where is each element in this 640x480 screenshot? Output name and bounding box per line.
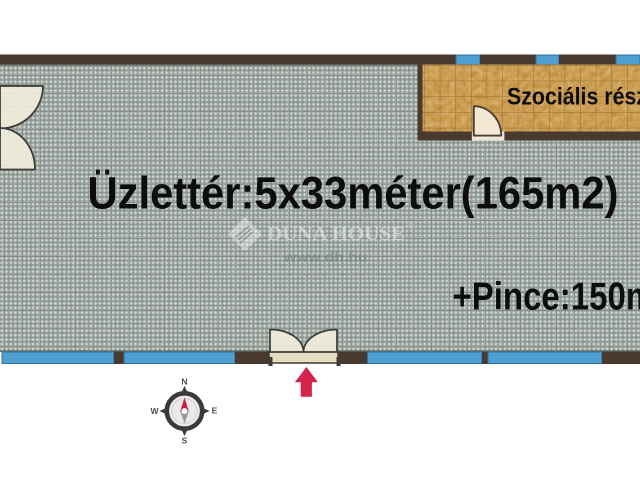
svg-text:Szociális rész: Szociális rész xyxy=(507,84,640,111)
svg-text:Üzlettér:5x33méter(165m2): Üzlettér:5x33méter(165m2) xyxy=(88,168,619,219)
svg-text:+Pince:150m2: +Pince:150m2 xyxy=(453,276,640,319)
svg-text:www.dh.hu: www.dh.hu xyxy=(283,250,368,265)
svg-text:DUNA HOUSE: DUNA HOUSE xyxy=(267,223,405,245)
svg-text:®: ® xyxy=(407,221,414,231)
svg-text:N: N xyxy=(181,377,187,387)
svg-text:S: S xyxy=(182,436,188,446)
svg-text:W: W xyxy=(150,406,159,416)
svg-text:E: E xyxy=(212,406,218,416)
